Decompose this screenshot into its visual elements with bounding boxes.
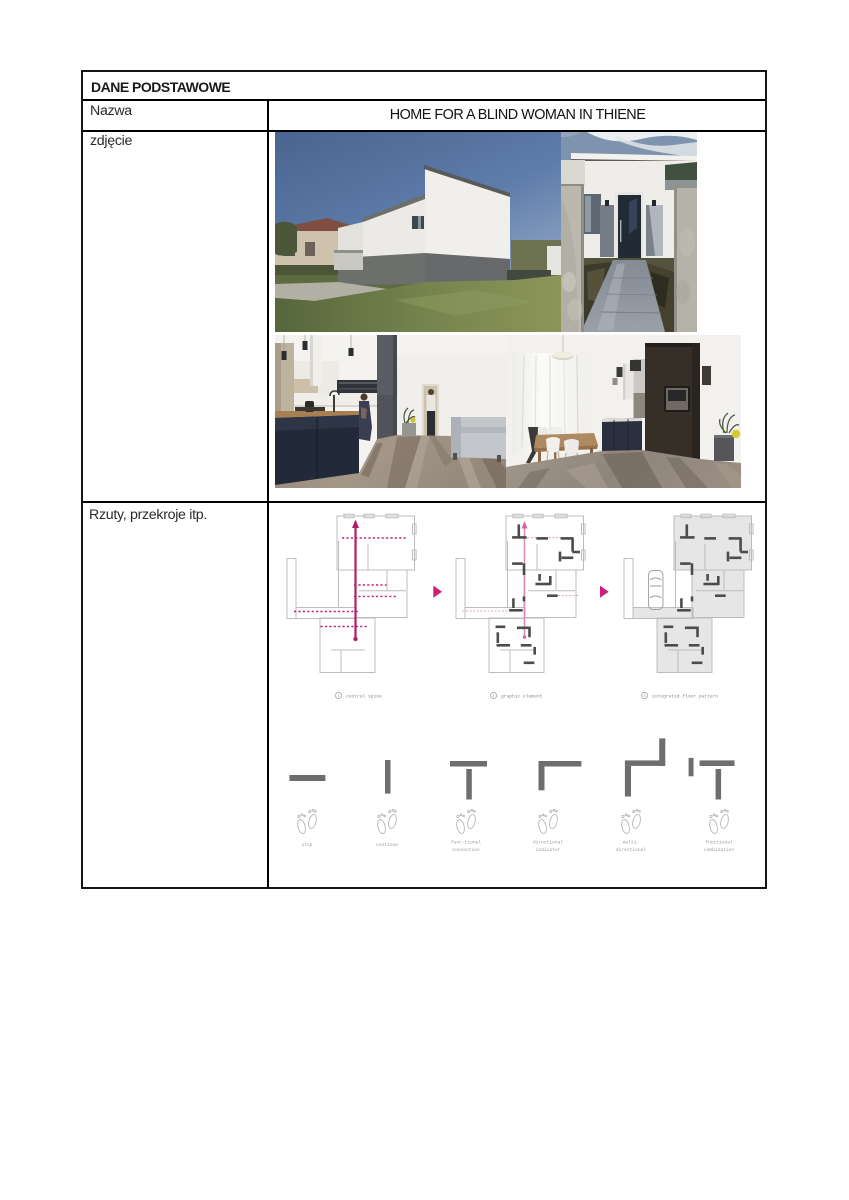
svg-text:multi-: multi- — [623, 840, 640, 846]
svg-text:directional: directional — [533, 840, 564, 846]
svg-text:stop: stop — [301, 842, 312, 848]
svg-text:indicator: indicator — [536, 847, 561, 853]
svg-text:functional: functional — [705, 840, 733, 846]
svg-text:continue: continue — [376, 842, 398, 848]
svg-text:integrated floor pattern: integrated floor pattern — [652, 693, 718, 699]
svg-text:graphic element: graphic element — [501, 693, 543, 699]
svg-text:directional: directional — [616, 847, 647, 853]
svg-text:connection: connection — [452, 847, 480, 853]
svg-text:func-tional: func-tional — [451, 840, 482, 846]
svg-text:combination: combination — [704, 847, 735, 853]
svg-text:central spine: central spine — [346, 693, 382, 699]
